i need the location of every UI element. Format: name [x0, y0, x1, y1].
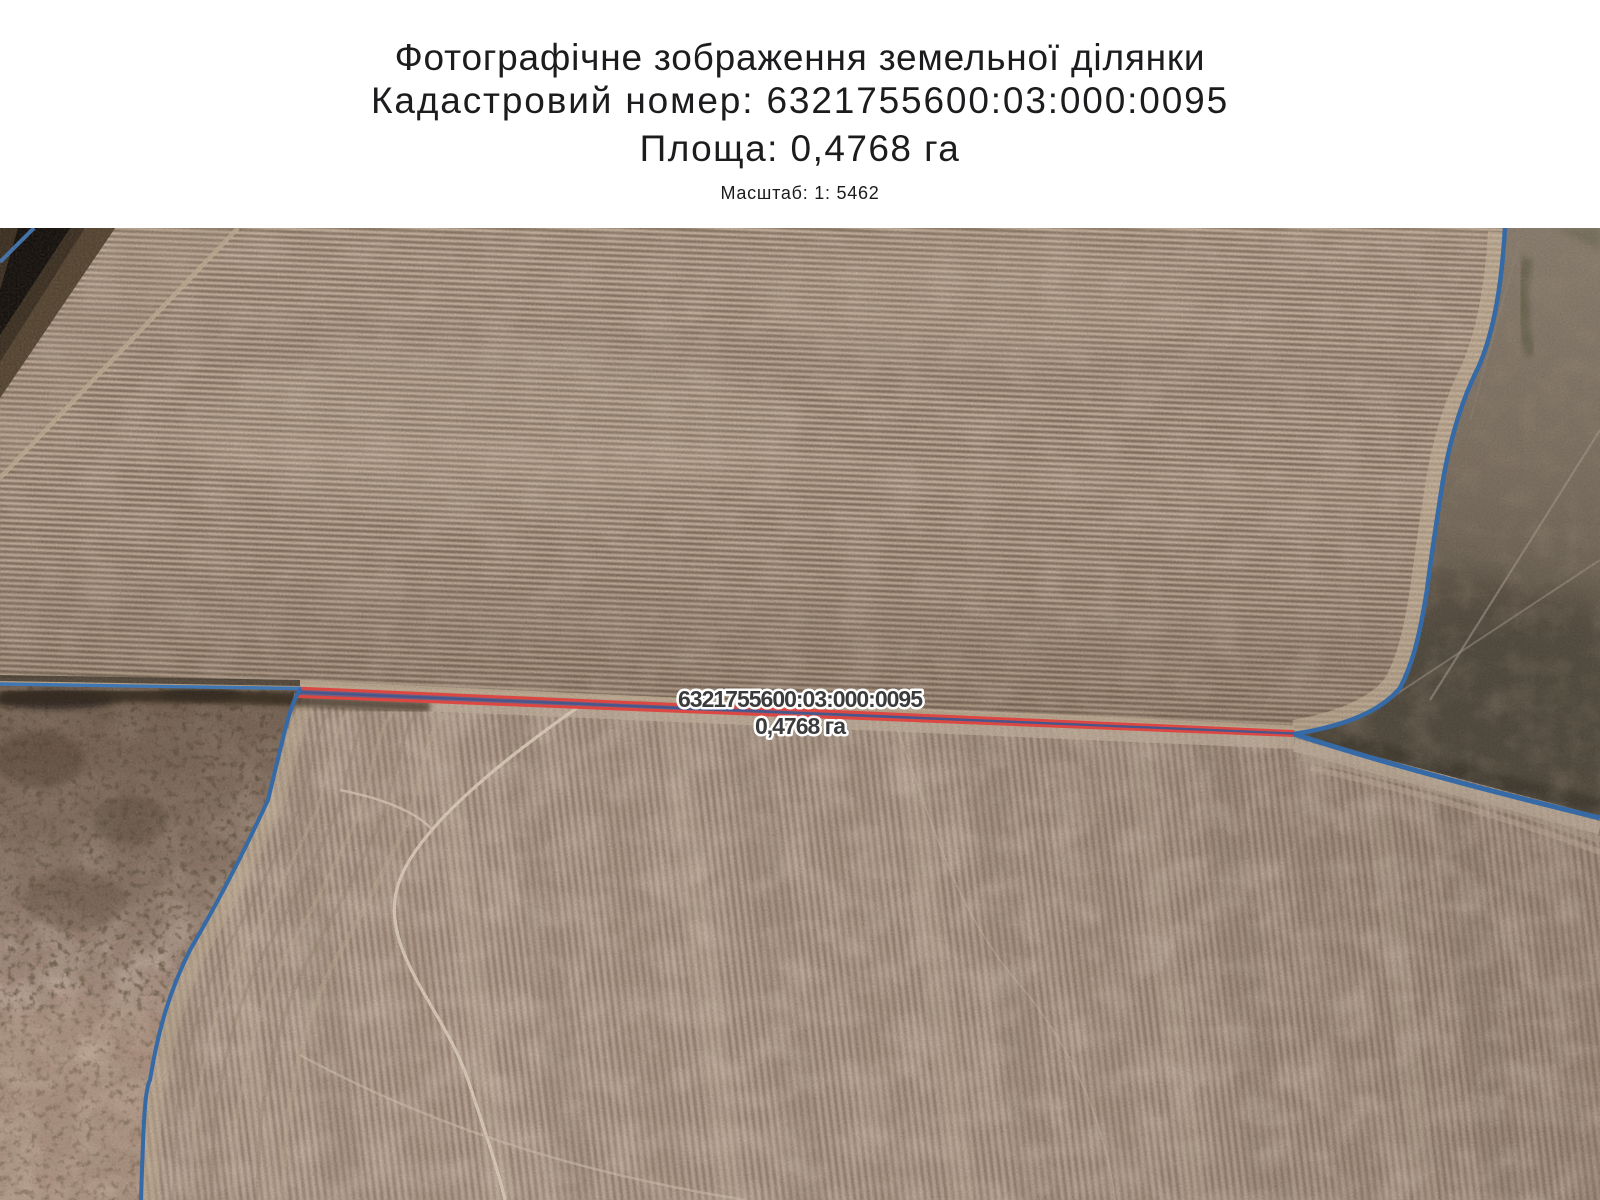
svg-text:6321755600:03:000:0095: 6321755600:03:000:0095	[678, 686, 923, 712]
svg-text:0,4768 га: 0,4768 га	[755, 713, 846, 739]
